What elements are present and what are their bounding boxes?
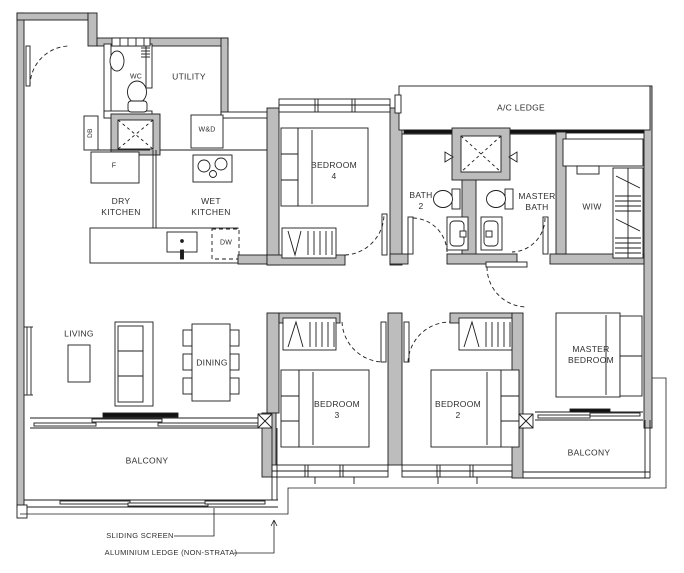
masterbath-sink-icon: [481, 217, 502, 250]
label-dry-kitchen: DRY KITCHEN: [101, 196, 140, 218]
bedroom4-wardrobe: [282, 228, 336, 258]
label-master-bedroom: MASTER BEDROOM: [568, 344, 614, 366]
label-bath2: BATH 2: [409, 190, 432, 212]
kitchen-wall-stub: [238, 255, 268, 264]
column-marker-left: [258, 414, 272, 428]
label-bedroom2: BEDROOM 2: [435, 399, 481, 421]
wc-toilet-icon: [128, 81, 148, 112]
bedroom4-window: [279, 99, 390, 112]
label-balcony-left: BALCONY: [126, 455, 169, 466]
bedroom2-window: [402, 465, 512, 477]
bedroom2-wardrobe: [459, 318, 512, 350]
masterbath-door: [512, 217, 548, 254]
bedroom3-window: [272, 465, 388, 477]
window-ledge-ticks: [315, 477, 477, 484]
coffee-table: [68, 345, 90, 382]
sofa: [115, 322, 153, 406]
label-dining: DINING: [196, 357, 228, 368]
bedroom2-door: [404, 322, 450, 362]
label-balcony-right: BALCONY: [568, 447, 611, 458]
hob-icon: [193, 155, 232, 182]
label-master-bath: MASTER BATH: [518, 191, 555, 213]
label-sliding-screen: SLIDING SCREEN: [106, 531, 174, 541]
label-washer-dryer: W&D: [199, 125, 216, 134]
masterbath-toilet-icon: [487, 189, 514, 209]
bedroom4-door: [345, 214, 387, 255]
living-window: [24, 327, 33, 395]
label-wiw: WIW: [582, 201, 601, 212]
annotation-leaders: [174, 508, 277, 553]
bath-shaft: [445, 128, 517, 180]
label-utility: UTILITY: [172, 71, 206, 82]
label-ac-ledge: A/C LEDGE: [497, 102, 545, 113]
column-marker-right: [519, 414, 533, 428]
floor-plan-drawing: [0, 0, 684, 573]
label-living: LIVING: [64, 328, 94, 339]
label-wet-kitchen: WET KITCHEN: [191, 196, 230, 218]
balcony-left-screen: [17, 428, 278, 518]
label-wc: WC: [130, 72, 142, 81]
kitchen-shaft: [84, 114, 160, 155]
wiw-fittings: [563, 139, 643, 258]
label-aluminium-ledge: ALUMINIUM LEDGE (NON-STRATA): [105, 548, 238, 558]
bath2-door: [408, 217, 447, 254]
label-fridge: F: [112, 161, 116, 170]
living-sliding-door: [30, 413, 258, 428]
master-bedroom-door: [486, 262, 527, 307]
entry-door: [26, 46, 70, 86]
master-sliding-door: [535, 409, 643, 420]
bath2-toilet-icon: [434, 189, 461, 209]
label-bedroom3: BEDROOM 3: [314, 399, 360, 421]
wc-sink-icon: [110, 51, 124, 71]
floor-plan: WC UTILITY DB W&D F DRY KITCHEN WET KITC…: [0, 0, 684, 573]
bedroom3-wardrobe: [283, 318, 336, 350]
label-dishwasher: DW: [220, 238, 232, 247]
label-db: DB: [87, 128, 95, 138]
label-bedroom4: BEDROOM 4: [311, 160, 357, 182]
bath2-sink-icon: [447, 217, 468, 250]
bedroom3-door: [342, 322, 386, 362]
